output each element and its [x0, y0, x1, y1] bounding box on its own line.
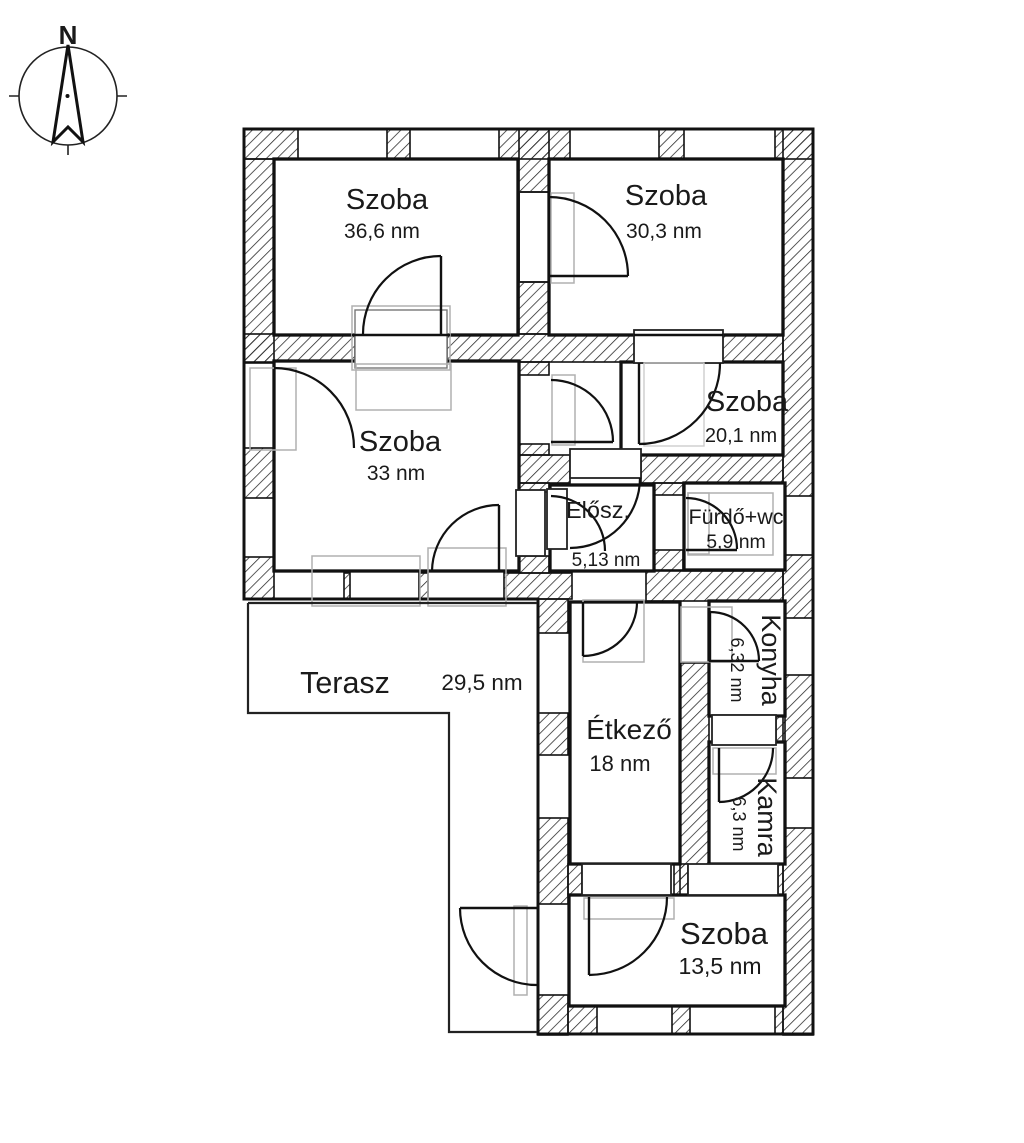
svg-text:36,6 nm: 36,6 nm: [344, 220, 420, 243]
svg-text:20,1 nm: 20,1 nm: [705, 425, 777, 447]
svg-text:Szoba: Szoba: [680, 916, 769, 951]
svg-text:Szoba: Szoba: [706, 386, 789, 418]
svg-text:6,3 nm: 6,3 nm: [729, 796, 749, 851]
svg-text:18 nm: 18 nm: [589, 751, 650, 776]
svg-text:13,5 nm: 13,5 nm: [678, 953, 761, 979]
svg-text:Szoba: Szoba: [359, 426, 442, 458]
svg-text:6,32 nm: 6,32 nm: [727, 637, 747, 702]
svg-text:33 nm: 33 nm: [367, 462, 425, 485]
svg-text:Étkező: Étkező: [586, 714, 672, 745]
svg-text:N: N: [59, 20, 78, 50]
svg-text:Fürdő+wc: Fürdő+wc: [689, 505, 784, 529]
svg-text:29,5 nm: 29,5 nm: [441, 670, 522, 695]
svg-text:Terasz: Terasz: [300, 666, 390, 700]
svg-text:30,3 nm: 30,3 nm: [626, 220, 702, 243]
svg-text:5,9 nm: 5,9 nm: [706, 531, 766, 553]
svg-text:Konyha: Konyha: [756, 614, 786, 707]
svg-text:Elősz.: Elősz.: [566, 497, 630, 523]
svg-text:Szoba: Szoba: [625, 180, 708, 212]
svg-text:5,13 nm: 5,13 nm: [572, 550, 641, 571]
svg-text:Kamra: Kamra: [752, 777, 782, 858]
svg-text:Szoba: Szoba: [346, 184, 429, 216]
